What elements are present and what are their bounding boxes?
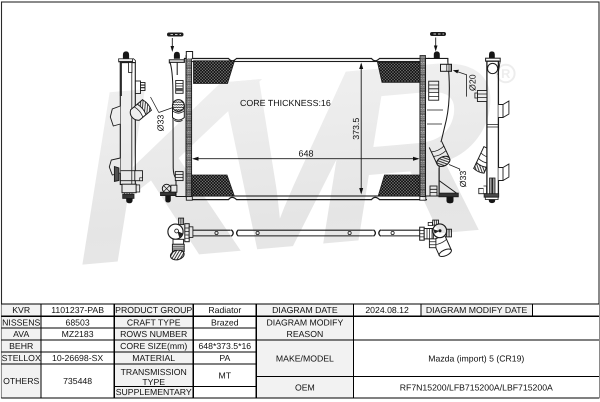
svg-text:KVR: KVR	[12, 305, 30, 315]
svg-text:1101237-PAB: 1101237-PAB	[51, 305, 104, 315]
svg-text:Brazed: Brazed	[211, 317, 239, 327]
svg-text:DIAGRAM DATE: DIAGRAM DATE	[272, 305, 338, 315]
svg-text:2024.08.12: 2024.08.12	[365, 305, 409, 315]
svg-text:BEHR: BEHR	[9, 341, 33, 351]
svg-text:PA: PA	[219, 353, 230, 363]
svg-text:10-26698-SX: 10-26698-SX	[52, 353, 103, 363]
svg-text:REASON: REASON	[287, 329, 324, 339]
svg-text:68503: 68503	[66, 317, 90, 327]
svg-text:DIAGRAM MODIFY DATE: DIAGRAM MODIFY DATE	[426, 305, 528, 315]
svg-text:RF7N15200/LFB715200A/LBF715200: RF7N15200/LFB715200A/LBF715200A	[400, 382, 553, 392]
svg-text:MT: MT	[219, 370, 232, 380]
svg-text:Mazda (import) 5 (CR19): Mazda (import) 5 (CR19)	[428, 353, 524, 363]
svg-text:OTHERS: OTHERS	[3, 376, 39, 386]
svg-text:MATERIAL: MATERIAL	[132, 353, 175, 363]
svg-text:CRAFT TYPE: CRAFT TYPE	[127, 317, 181, 327]
svg-text:735448: 735448	[63, 376, 92, 386]
svg-text:R: R	[501, 66, 510, 81]
svg-text:Radiator: Radiator	[208, 305, 241, 315]
svg-text:DIAGRAM MODIFY: DIAGRAM MODIFY	[267, 317, 344, 327]
svg-text:PRODUCT GROUP: PRODUCT GROUP	[115, 305, 192, 315]
svg-text:648*373.5*16: 648*373.5*16	[198, 341, 251, 351]
svg-text:Ø33: Ø33	[458, 171, 468, 188]
svg-text:TRANSMISSION: TRANSMISSION	[121, 367, 187, 377]
svg-text:MZ2183: MZ2183	[62, 329, 94, 339]
svg-text:OEM: OEM	[295, 382, 315, 392]
svg-text:MAKE/MODEL: MAKE/MODEL	[276, 353, 334, 363]
svg-text:AVA: AVA	[13, 329, 29, 339]
svg-text:SUPPLEMENTARY: SUPPLEMENTARY	[116, 387, 192, 397]
svg-text:STELLOX: STELLOX	[2, 353, 41, 363]
svg-text:Ø20: Ø20	[467, 74, 477, 91]
svg-text:CORE SIZE(mm): CORE SIZE(mm)	[120, 341, 187, 351]
svg-text:TYPE: TYPE	[142, 377, 165, 387]
svg-text:NISSENS: NISSENS	[2, 317, 40, 327]
svg-text:ROWS NUMBER: ROWS NUMBER	[120, 329, 187, 339]
